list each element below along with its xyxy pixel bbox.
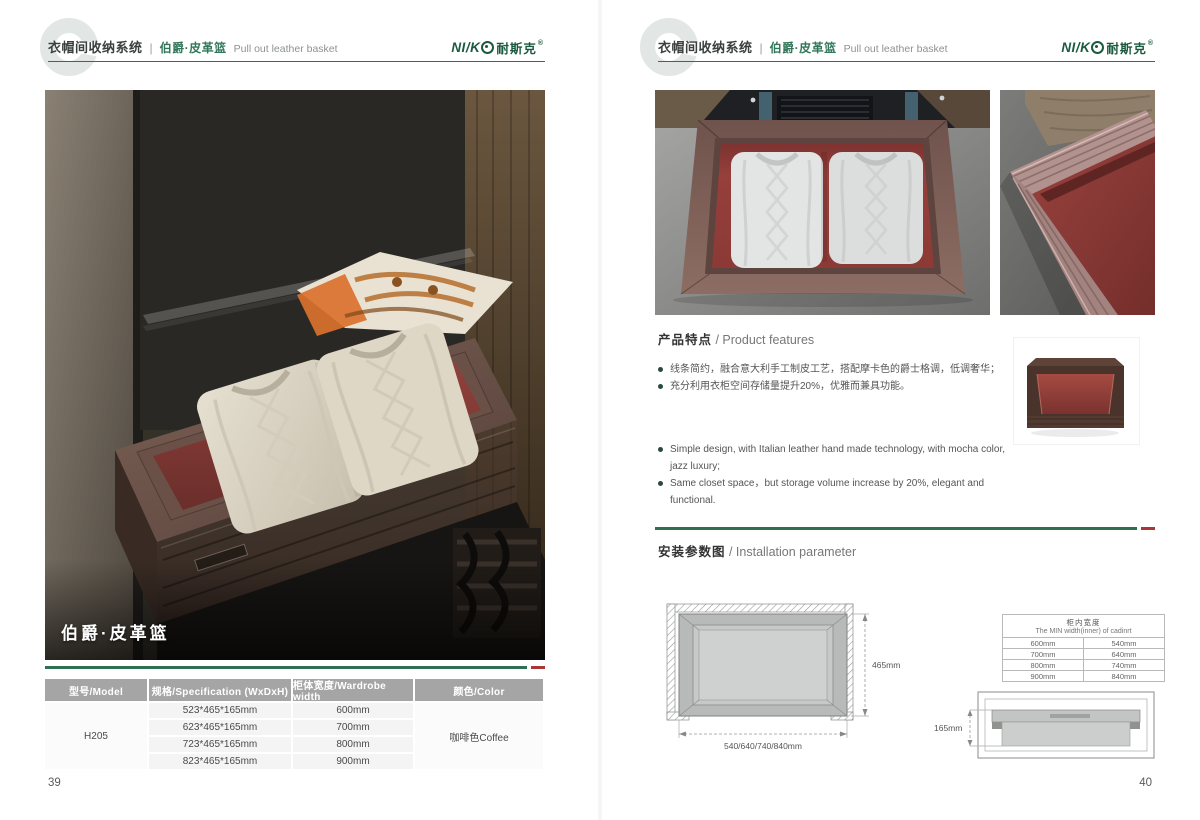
basket-thumbnail bbox=[1013, 337, 1140, 445]
brand-latin: NI/K bbox=[451, 40, 480, 55]
min-width-title-en: The MIN width(inner) of cadinrt bbox=[1003, 628, 1164, 635]
brand-logo: NI/K耐斯克® bbox=[451, 38, 543, 57]
page-right: 衣帽间收纳系统 | 伯爵·皮革篮 Pull out leather basket… bbox=[600, 0, 1200, 820]
installation-title: 安装参数图 / Installation parameter bbox=[658, 541, 856, 560]
installation-title-en: / Installation parameter bbox=[726, 545, 857, 559]
installation-title-zh: 安装参数图 bbox=[658, 545, 726, 559]
brand-cn: 耐斯克 bbox=[1106, 38, 1147, 57]
min-inner-width: 540mm bbox=[1084, 638, 1165, 649]
brand-o-icon bbox=[1091, 41, 1104, 54]
brand-registered-mark: ® bbox=[538, 40, 543, 47]
table-row: 800mm740mm bbox=[1003, 660, 1165, 671]
system-title: 衣帽间收纳系统 bbox=[658, 37, 753, 56]
system-title: 衣帽间收纳系统 bbox=[48, 37, 143, 56]
model-cell: H205 bbox=[45, 703, 147, 769]
spec-value: 723*465*165mm bbox=[149, 737, 291, 752]
brand-registered-mark: ® bbox=[1148, 40, 1153, 47]
header-divider: | bbox=[760, 41, 763, 55]
page-header: 衣帽间收纳系统 | 伯爵·皮革篮 Pull out leather basket bbox=[658, 37, 948, 55]
header-divider: | bbox=[150, 41, 153, 55]
bullet-icon bbox=[658, 481, 663, 486]
width-dimension-label: 540/640/740/840mm bbox=[724, 741, 802, 751]
feature-bullet-zh-1: 线条简约，融合意大利手工制皮工艺，搭配摩卡色的爵士格调，低调奢华； bbox=[658, 361, 1008, 378]
col-header-model: 型号/Model bbox=[45, 679, 147, 701]
table-row: 600mm540mm bbox=[1003, 638, 1165, 649]
basket-corner-art bbox=[1000, 90, 1155, 315]
basket-corner-detail-photo bbox=[1000, 90, 1155, 315]
brand-o-icon bbox=[481, 41, 494, 54]
features-list-zh: 线条简约，融合意大利手工制皮工艺，搭配摩卡色的爵士格调，低调奢华； 充分利用衣柜… bbox=[658, 361, 1008, 395]
features-title: 产品特点 / Product features bbox=[658, 329, 1008, 348]
wardrobe-width-value: 600mm bbox=[293, 703, 413, 718]
bullet-icon bbox=[658, 447, 663, 452]
table-row: 900mm840mm bbox=[1003, 671, 1165, 682]
basket-thumbnail-art bbox=[1014, 338, 1137, 442]
basket-topview-photo bbox=[655, 90, 990, 315]
cabinet-width: 800mm bbox=[1003, 660, 1084, 671]
min-inner-width: 740mm bbox=[1084, 660, 1165, 671]
separator-green-line bbox=[655, 527, 1137, 530]
brand-latin: NI/K bbox=[1061, 40, 1090, 55]
spec-value: 823*465*165mm bbox=[149, 754, 291, 769]
page-number-left: 39 bbox=[48, 777, 61, 789]
brand-logo: NI/K耐斯克® bbox=[1061, 38, 1153, 57]
section-separator bbox=[45, 666, 545, 669]
cabinet-width: 900mm bbox=[1003, 671, 1084, 682]
wardrobe-photo-art bbox=[45, 90, 545, 660]
page-header: 衣帽间收纳系统 | 伯爵·皮革篮 Pull out leather basket bbox=[48, 37, 338, 55]
page-number-right: 40 bbox=[1139, 777, 1152, 789]
col-header-color: 颜色/Color bbox=[415, 679, 543, 701]
bullet-icon bbox=[658, 367, 663, 372]
sideview-diagram: 165mm bbox=[930, 690, 1162, 767]
spec-value: 623*465*165mm bbox=[149, 720, 291, 735]
table-row: 700mm640mm bbox=[1003, 649, 1165, 660]
min-width-table: 柜内宽度 The MIN width(inner) of cadinrt 600… bbox=[1002, 614, 1165, 682]
brand-cn: 耐斯克 bbox=[496, 38, 537, 57]
separator-green-line bbox=[45, 666, 527, 669]
features-title-zh: 产品特点 bbox=[658, 333, 712, 347]
product-name-zh: 伯爵·皮革篮 bbox=[160, 39, 227, 56]
color-cell: 咖啡色Coffee bbox=[415, 703, 543, 769]
separator-red-dash bbox=[531, 666, 545, 669]
spec-value: 523*465*165mm bbox=[149, 703, 291, 718]
wardrobe-width-value: 800mm bbox=[293, 737, 413, 752]
depth-dimension-label: 465mm bbox=[872, 660, 900, 670]
product-features-section: 产品特点 / Product features 线条简约，融合意大利手工制皮工艺… bbox=[658, 329, 1008, 509]
header-rule bbox=[658, 61, 1155, 62]
folded-sweater-right bbox=[829, 152, 923, 264]
cabinet-width: 600mm bbox=[1003, 638, 1084, 649]
min-inner-width: 640mm bbox=[1084, 649, 1165, 660]
feature-bullet-zh-2: 充分利用衣柜空间存储量提升20%，优雅而兼具功能。 bbox=[658, 378, 1008, 395]
wardrobe-width-value: 700mm bbox=[293, 720, 413, 735]
spec-table: 型号/Model 规格/Specification (WxDxH) 柜体宽度/W… bbox=[45, 679, 545, 769]
height-dimension-label: 165mm bbox=[934, 723, 962, 733]
col-header-width: 柜体宽度/Wardrobe width bbox=[293, 679, 413, 701]
product-name-zh: 伯爵·皮革篮 bbox=[770, 39, 837, 56]
product-name-en: Pull out leather basket bbox=[844, 43, 948, 55]
bullet-icon bbox=[658, 384, 663, 389]
page-left: 衣帽间收纳系统 | 伯爵·皮革篮 Pull out leather basket… bbox=[0, 0, 600, 820]
cabinet-width: 700mm bbox=[1003, 649, 1084, 660]
min-width-title-zh: 柜内宽度 bbox=[1003, 617, 1164, 628]
features-title-en: / Product features bbox=[712, 333, 814, 347]
wardrobe-width-value: 900mm bbox=[293, 754, 413, 769]
feature-bullet-en-2: Same closet space，but storage volume inc… bbox=[658, 475, 1008, 509]
col-header-spec: 规格/Specification (WxDxH) bbox=[149, 679, 291, 701]
features-list-en: Simple design, with Italian leather hand… bbox=[658, 441, 1008, 509]
separator-red-dash bbox=[1141, 527, 1155, 530]
feature-bullet-en-1: Simple design, with Italian leather hand… bbox=[658, 441, 1008, 475]
basket-topview-art bbox=[655, 90, 990, 315]
min-width-table-title: 柜内宽度 The MIN width(inner) of cadinrt bbox=[1003, 615, 1165, 638]
header-rule bbox=[48, 61, 545, 62]
section-separator bbox=[655, 527, 1155, 530]
topview-diagram-art: 465mm 540/640/740/840mm bbox=[655, 598, 910, 753]
wardrobe-photo: 伯爵·皮革篮 bbox=[45, 90, 545, 660]
product-name-en: Pull out leather basket bbox=[234, 43, 338, 55]
topview-diagram: 465mm 540/640/740/840mm bbox=[655, 598, 910, 758]
photo-caption: 伯爵·皮革篮 bbox=[61, 619, 170, 644]
sideview-diagram-art: 165mm bbox=[930, 690, 1162, 762]
min-inner-width: 840mm bbox=[1084, 671, 1165, 682]
folded-sweater-left bbox=[731, 152, 823, 268]
